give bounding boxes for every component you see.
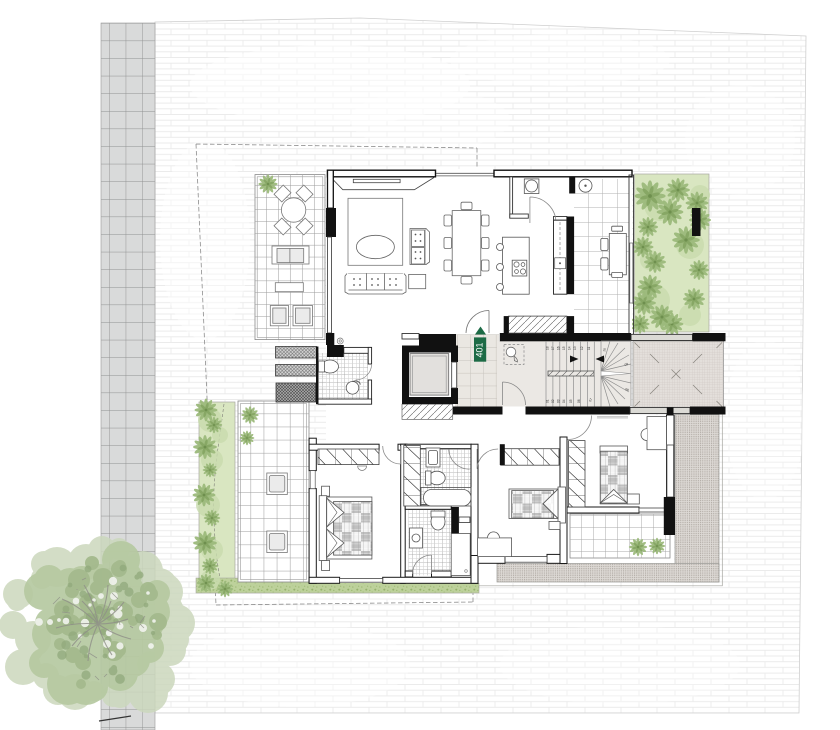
svg-text:14: 14 [568,346,572,350]
svg-text:18: 18 [546,346,550,350]
svg-text:05: 05 [569,399,573,403]
svg-text:13: 13 [573,346,577,350]
svg-text:06: 06 [577,399,581,403]
svg-text:16: 16 [557,346,561,350]
svg-text:15: 15 [562,346,566,350]
svg-text:02: 02 [551,399,555,403]
svg-text:401: 401 [474,342,484,357]
svg-text:12: 12 [580,346,584,350]
svg-text:17: 17 [551,346,555,350]
svg-text:01: 01 [546,399,550,403]
svg-text:03: 03 [557,399,561,403]
svg-text:04: 04 [562,399,566,403]
svg-text:11: 11 [587,346,591,350]
